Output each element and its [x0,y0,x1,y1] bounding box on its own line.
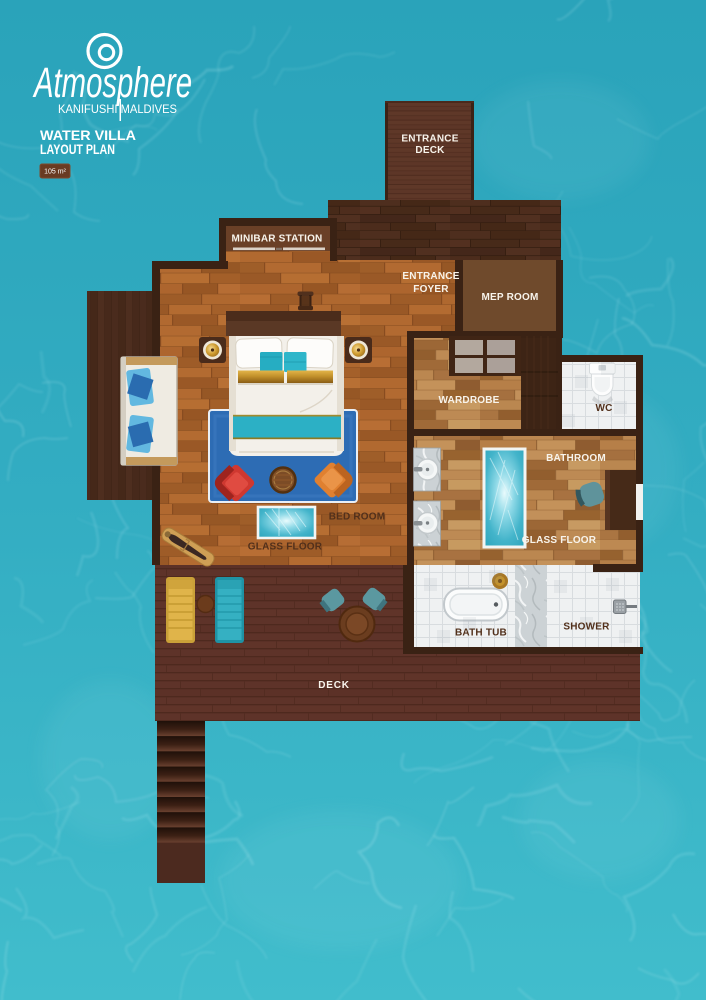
svg-text:GLASS FLOOR: GLASS FLOOR [248,542,323,553]
svg-text:105 m²: 105 m² [44,169,66,176]
svg-text:GLASS FLOOR: GLASS FLOOR [522,535,597,546]
svg-text:Atmosphere: Atmosphere [32,59,192,107]
svg-text:WARDROBE: WARDROBE [438,395,499,406]
svg-text:LAYOUT PLAN: LAYOUT PLAN [40,142,115,157]
svg-text:FOYER: FOYER [413,284,449,295]
svg-text:KANIFUSHI MALDIVES: KANIFUSHI MALDIVES [58,102,177,116]
svg-text:BATH TUB: BATH TUB [455,628,507,639]
svg-text:BATHROOM: BATHROOM [546,453,606,464]
svg-text:SHOWER: SHOWER [563,622,610,633]
svg-text:DECK: DECK [318,680,350,691]
svg-text:WATER VILLA: WATER VILLA [40,128,136,143]
svg-text:DECK: DECK [415,145,445,156]
svg-text:WC: WC [595,403,612,414]
svg-text:ENTRANCE: ENTRANCE [401,134,458,145]
svg-text:MINIBAR STATION: MINIBAR STATION [232,234,323,245]
svg-text:ENTRANCE: ENTRANCE [402,271,459,282]
svg-text:BED ROOM: BED ROOM [329,512,386,523]
svg-text:MEP ROOM: MEP ROOM [482,292,539,303]
